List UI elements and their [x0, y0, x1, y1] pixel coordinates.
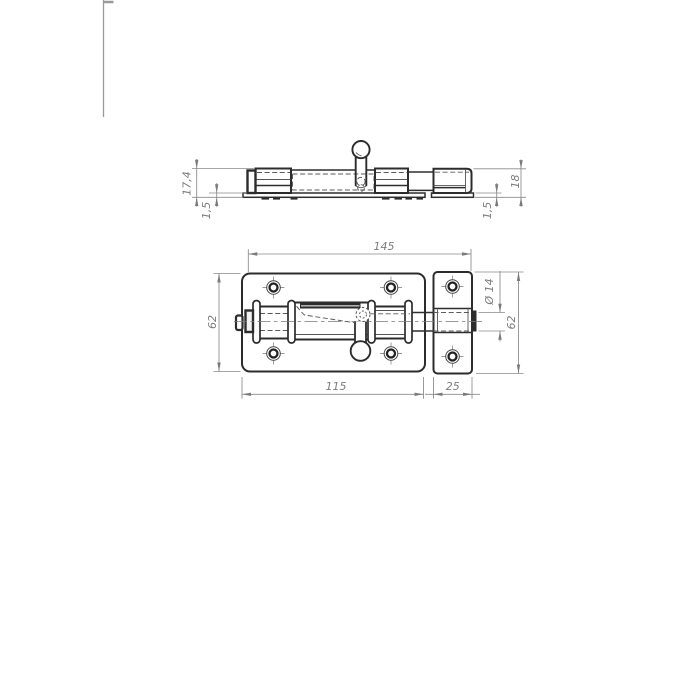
dim-plan-overall-length: 145 [248, 240, 471, 272]
dim-label-bolt-diameter: Ø 14 [483, 278, 496, 305]
plan-view: 145 62 115 25 [206, 240, 524, 399]
plan-knob-mount [356, 308, 370, 322]
plan-barrel-right [375, 307, 405, 339]
knob-thread-hidden [357, 177, 365, 185]
dim-side-plate-thickness-right: 1,5 [476, 183, 502, 219]
screw-hole-top-left [263, 277, 285, 299]
side-bolt-rod [408, 172, 434, 190]
plan-rod-end-cap [472, 311, 477, 332]
dim-label-overall-length: 145 [374, 240, 395, 253]
screw-hole-keeper-top [442, 276, 464, 298]
dim-plan-bolt-diameter: Ø 14 [479, 271, 506, 342]
dim-plan-keeper-height: 62 [475, 272, 524, 374]
dim-label-keeper-length: 25 [446, 380, 460, 393]
dim-label-keeper-height: 62 [505, 316, 518, 330]
frame-corner [103, 0, 114, 117]
plan-hidden-slot-line [297, 306, 356, 323]
side-keeper-bracket [434, 169, 472, 193]
plan-barrel-left [260, 307, 288, 339]
screw-hole-keeper-bottom [442, 346, 464, 368]
screw-hole-bottom-left [263, 343, 285, 365]
dim-side-keeper-height: 18 [474, 160, 527, 207]
screw-hole-top-right [380, 277, 402, 299]
technical-drawing: 17,4 1,5 18 1,5 [0, 0, 700, 700]
plan-knob-ball [351, 341, 371, 361]
dim-label-plate-length: 115 [326, 380, 347, 393]
screw-hole-bottom-right [380, 343, 402, 365]
dim-label-plate-thickness-right: 1,5 [481, 202, 494, 220]
dim-side-body-height: 17,4 [181, 159, 256, 207]
dim-label-keeper-height: 18 [509, 175, 522, 189]
dim-plan-keeper-length: 25 [425, 377, 480, 399]
side-view: 17,4 1,5 18 1,5 [181, 141, 527, 219]
dim-label-plate-thickness-left: 1,5 [200, 202, 213, 220]
dim-label-body-height: 17,4 [181, 171, 194, 196]
side-bolt-end-cap [248, 171, 256, 194]
dim-side-plate-thickness-left: 1,5 [200, 183, 247, 219]
side-knob [352, 141, 369, 191]
side-guide-block-left [256, 169, 292, 194]
drawing-canvas: 17,4 1,5 18 1,5 [0, 0, 700, 700]
plan-keeper-bridge [434, 309, 473, 333]
dim-plan-plate-length: 115 [242, 377, 424, 399]
dim-label-plate-height: 62 [206, 315, 219, 329]
side-guide-block-middle [375, 169, 408, 194]
plan-bolt-protrusion [236, 316, 243, 331]
